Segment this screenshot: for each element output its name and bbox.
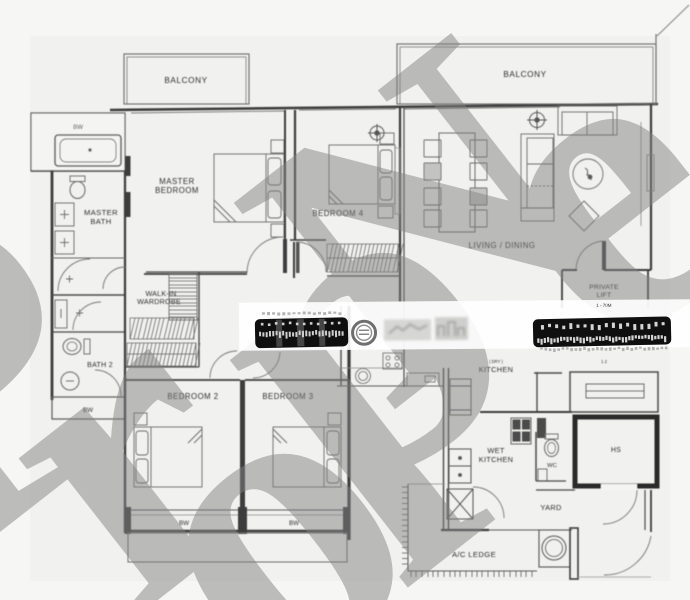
svg-text:BALCONY: BALCONY <box>164 76 207 85</box>
svg-text:MASTER: MASTER <box>84 208 118 217</box>
svg-text:1 - 70M: 1 - 70M <box>596 303 612 308</box>
svg-text:BATH: BATH <box>90 217 111 226</box>
svg-text:BW: BW <box>73 124 83 131</box>
svg-text:HS: HS <box>611 447 621 454</box>
svg-text:YARD: YARD <box>540 503 561 512</box>
svg-text:A/C LEDGE: A/C LEDGE <box>452 550 496 559</box>
